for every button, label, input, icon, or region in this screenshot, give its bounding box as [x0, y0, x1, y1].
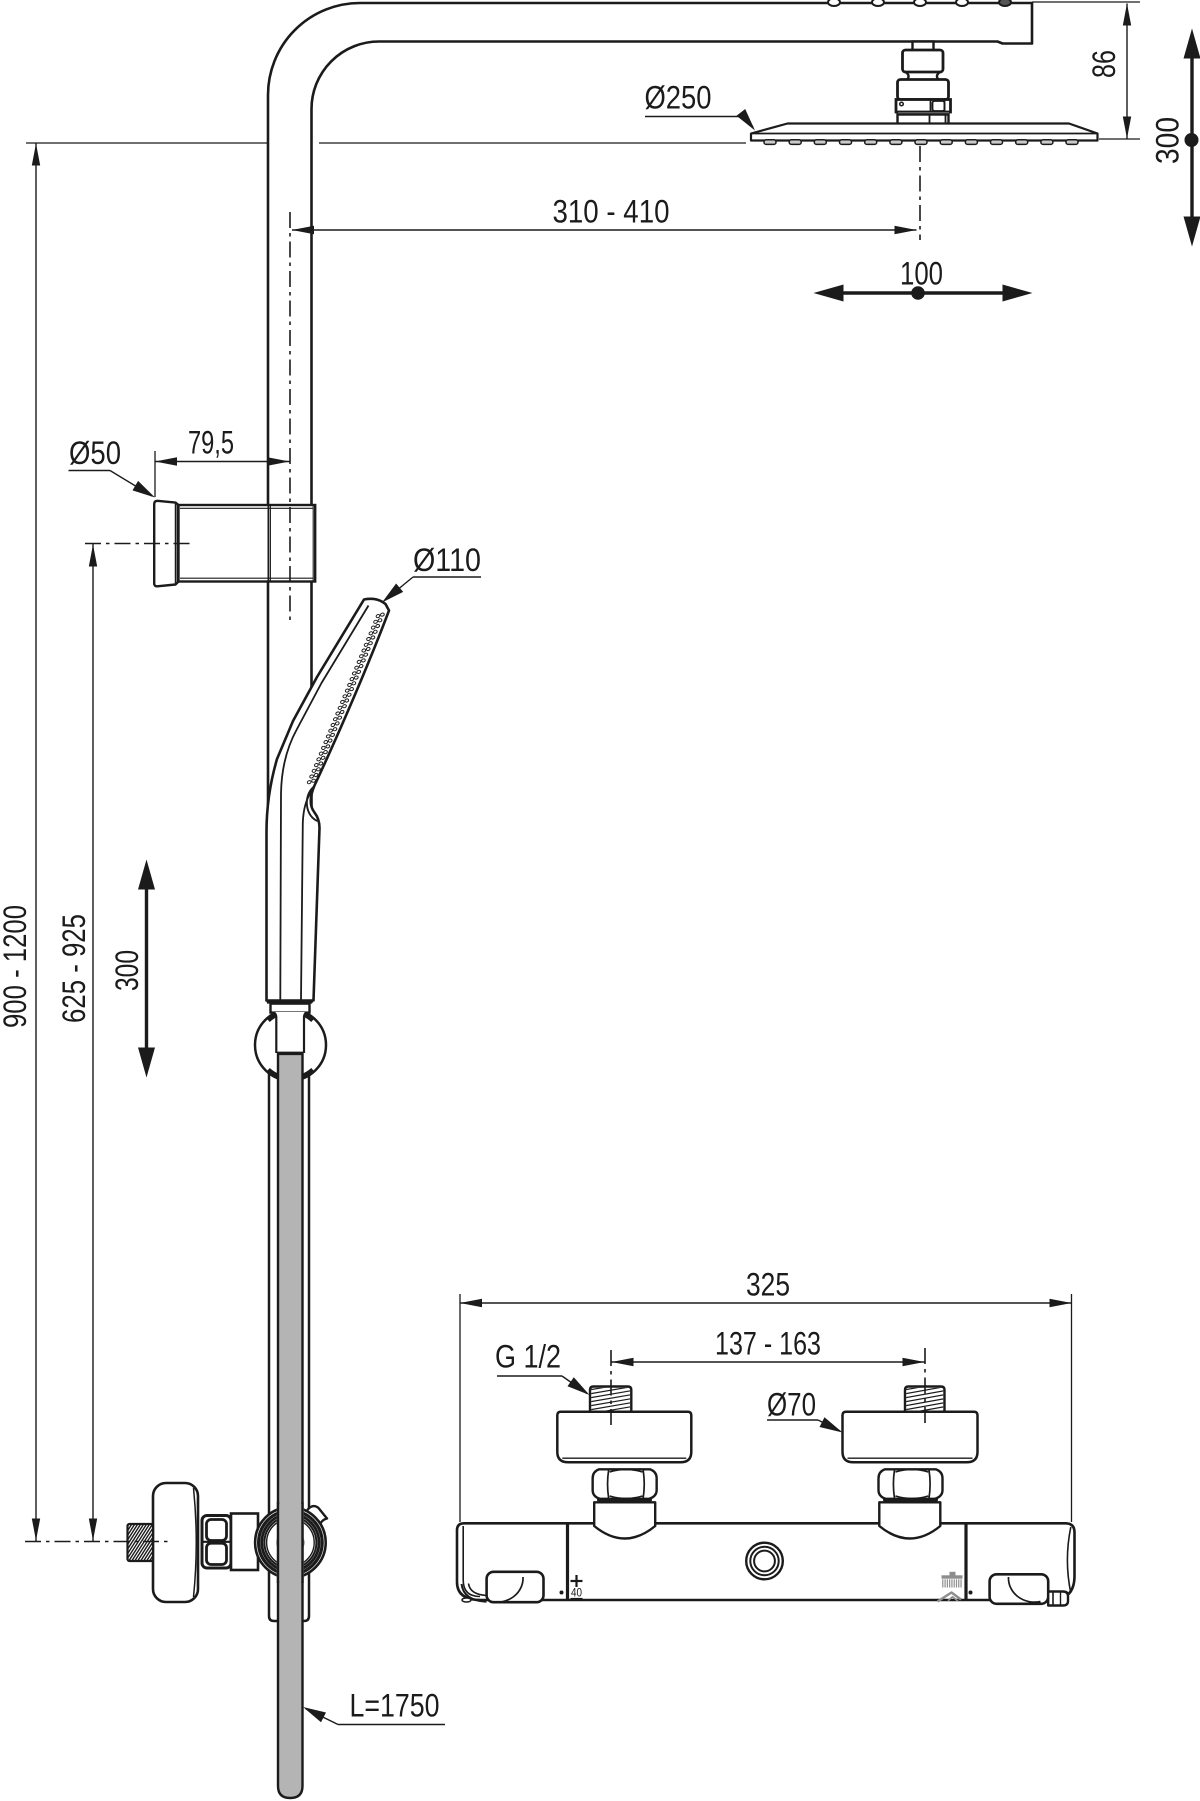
- svg-text:310 - 410: 310 - 410: [553, 194, 670, 230]
- svg-text:325: 325: [746, 1267, 790, 1303]
- svg-text:100: 100: [900, 256, 943, 292]
- svg-text:137 - 163: 137 - 163: [715, 1326, 821, 1362]
- svg-text:G 1/2: G 1/2: [495, 1339, 561, 1375]
- svg-text:40: 40: [571, 1588, 582, 1600]
- svg-text:Ø250: Ø250: [645, 80, 712, 116]
- svg-text:86: 86: [1086, 50, 1122, 78]
- svg-text:900 - 1200: 900 - 1200: [0, 905, 33, 1028]
- svg-text:Ø70: Ø70: [767, 1387, 816, 1423]
- svg-text:625 - 925: 625 - 925: [56, 914, 92, 1023]
- svg-text:300: 300: [109, 950, 145, 991]
- svg-text:300: 300: [1150, 117, 1186, 164]
- svg-text:Ø50: Ø50: [69, 435, 121, 471]
- svg-text:Ø110: Ø110: [413, 542, 481, 578]
- svg-text:79,5: 79,5: [188, 425, 234, 461]
- svg-text:L=1750: L=1750: [350, 1688, 440, 1724]
